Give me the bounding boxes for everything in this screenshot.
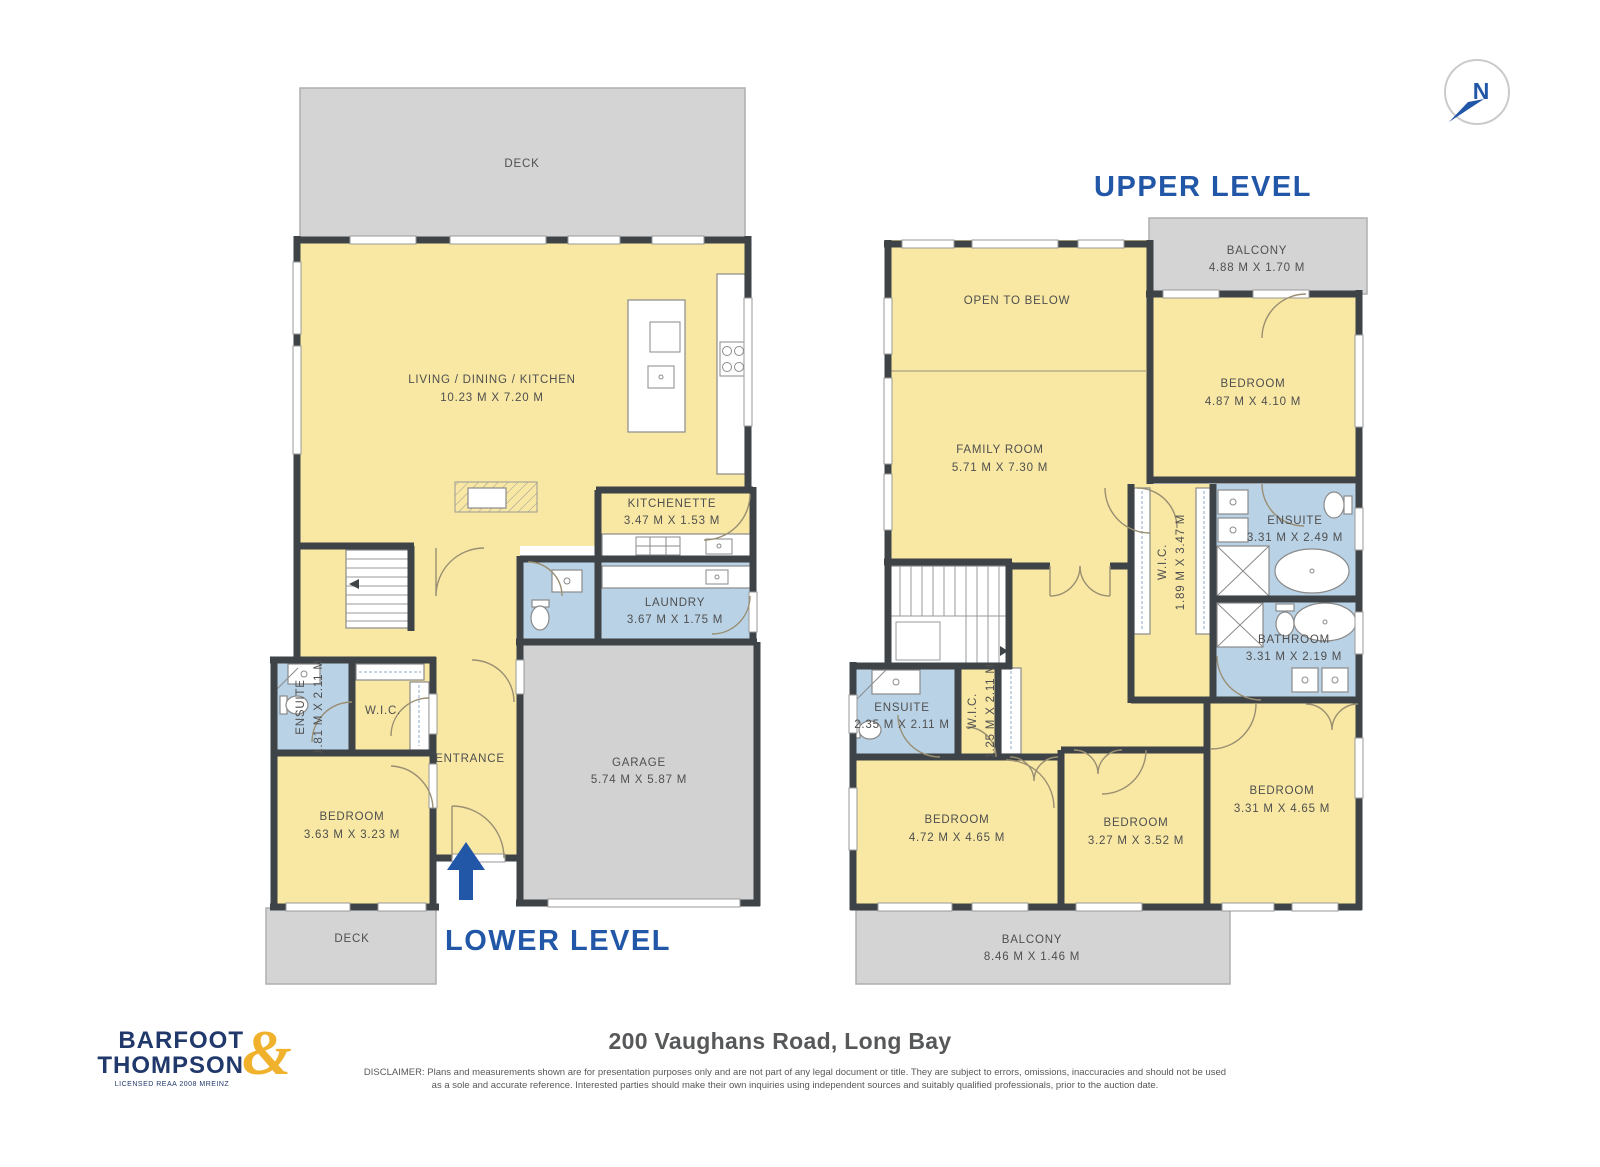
north-compass-icon: N	[1445, 60, 1509, 124]
room-label-wic: W.I.C.	[365, 705, 401, 717]
hall-strip-area	[1061, 700, 1207, 750]
room-label-bathroom: BATHROOM	[1258, 634, 1330, 646]
room-dims-laundry: 3.67 M X 1.75 M	[627, 614, 723, 626]
stairs-upper	[888, 566, 1009, 666]
room-label-living: LIVING / DINING / KITCHEN	[408, 374, 576, 386]
room-label-open-to-below: OPEN TO BELOW	[964, 295, 1070, 307]
hall-closet	[1001, 668, 1021, 754]
room-label-garage: GARAGE	[612, 757, 666, 769]
room-label-ensuite: ENSUITE	[295, 679, 307, 734]
floorplan-page: DECK LIVING / DINING / KITCHEN 10.23 M X…	[0, 0, 1600, 1167]
garage-area	[520, 642, 757, 903]
lower-level-title: LOWER LEVEL	[445, 925, 671, 957]
upper-level-plan: BALCONY 4.88 M X 1.70 M OPEN TO BELOW FA…	[849, 171, 1367, 984]
stairs-lower	[346, 550, 411, 628]
room-label-deck-top: DECK	[504, 158, 539, 170]
kitchen-island	[628, 300, 685, 432]
room-dims-family-room: 5.71 M X 7.30 M	[952, 462, 1048, 474]
room-label-bedroom-br: BEDROOM	[1249, 785, 1314, 797]
room-label-wic-main: W.I.C.	[1157, 544, 1169, 580]
room-label-laundry: LAUNDRY	[645, 597, 705, 609]
laundry-counter	[602, 566, 753, 588]
disclaimer-line2: as a sole and accurate reference. Intere…	[0, 1079, 1590, 1092]
room-dims-bedroom-br: 3.31 M X 4.65 M	[1234, 803, 1330, 815]
lower-level-plan: DECK LIVING / DINING / KITCHEN 10.23 M X…	[266, 88, 760, 984]
room-label-kitchenette: KITCHENETTE	[628, 498, 717, 510]
room-dims-bathroom: 3.31 M X 2.19 M	[1246, 651, 1342, 663]
balcony-bottom-area	[856, 910, 1230, 984]
room-dims-living: 10.23 M X 7.20 M	[440, 392, 544, 404]
room-label-bedroom: BEDROOM	[319, 811, 384, 823]
kitchen-counter	[717, 274, 745, 474]
room-dims-bedroom-bm: 3.27 M X 3.52 M	[1088, 835, 1184, 847]
room-dims-ensuite2: 2.35 M X 2.11 M	[854, 719, 950, 731]
property-address: 200 Vaughans Road, Long Bay	[0, 1028, 1560, 1055]
room-dims-garage: 5.74 M X 5.87 M	[591, 774, 687, 786]
room-label-bedroom-bl: BEDROOM	[924, 814, 989, 826]
room-dims-kitchenette: 3.47 M X 1.53 M	[624, 515, 720, 527]
room-label-bedroom-bm: BEDROOM	[1103, 817, 1168, 829]
floorplan-canvas: DECK LIVING / DINING / KITCHEN 10.23 M X…	[0, 0, 1600, 1167]
room-label-balcony-top: BALCONY	[1227, 245, 1288, 257]
room-dims-balcony-bottom: 8.46 M X 1.46 M	[984, 951, 1080, 963]
room-label-ensuite2: ENSUITE	[874, 702, 929, 714]
room-dims-balcony-top: 4.88 M X 1.70 M	[1209, 262, 1305, 274]
room-dims-ensuite-main: 3.31 M X 2.49 M	[1247, 532, 1343, 544]
fireplace-icon	[455, 482, 537, 512]
kitchenette-counter	[602, 534, 753, 558]
room-label-wic2: W.I.C.	[967, 693, 979, 729]
room-dims-wic2: 1.25 M X 2.11 M	[985, 663, 997, 759]
room-label-entrance: ENTRANCE	[435, 753, 505, 765]
room-label-family-room: FAMILY ROOM	[956, 444, 1044, 456]
room-dims-bedroom-tr: 4.87 M X 4.10 M	[1205, 396, 1301, 408]
room-label-ensuite-main: ENSUITE	[1267, 515, 1322, 527]
room-label-deck-bottom: DECK	[334, 933, 369, 945]
room-dims-bedroom: 3.63 M X 3.23 M	[304, 829, 400, 841]
disclaimer-line1: DISCLAIMER: Plans and measurements shown…	[0, 1066, 1590, 1079]
disclaimer: DISCLAIMER: Plans and measurements shown…	[0, 1066, 1590, 1092]
room-dims-wic-main: 1.89 M X 3.47 M	[1175, 514, 1187, 610]
room-label-balcony-bottom: BALCONY	[1002, 934, 1063, 946]
room-dims-bedroom-bl: 4.72 M X 4.65 M	[909, 832, 1005, 844]
room-label-bedroom-tr: BEDROOM	[1220, 378, 1285, 390]
room-dims-ensuite: 1.81 M X 2.11 M	[313, 659, 325, 755]
deck-bottom-area	[266, 908, 436, 984]
upper-level-title: UPPER LEVEL	[1094, 171, 1312, 203]
